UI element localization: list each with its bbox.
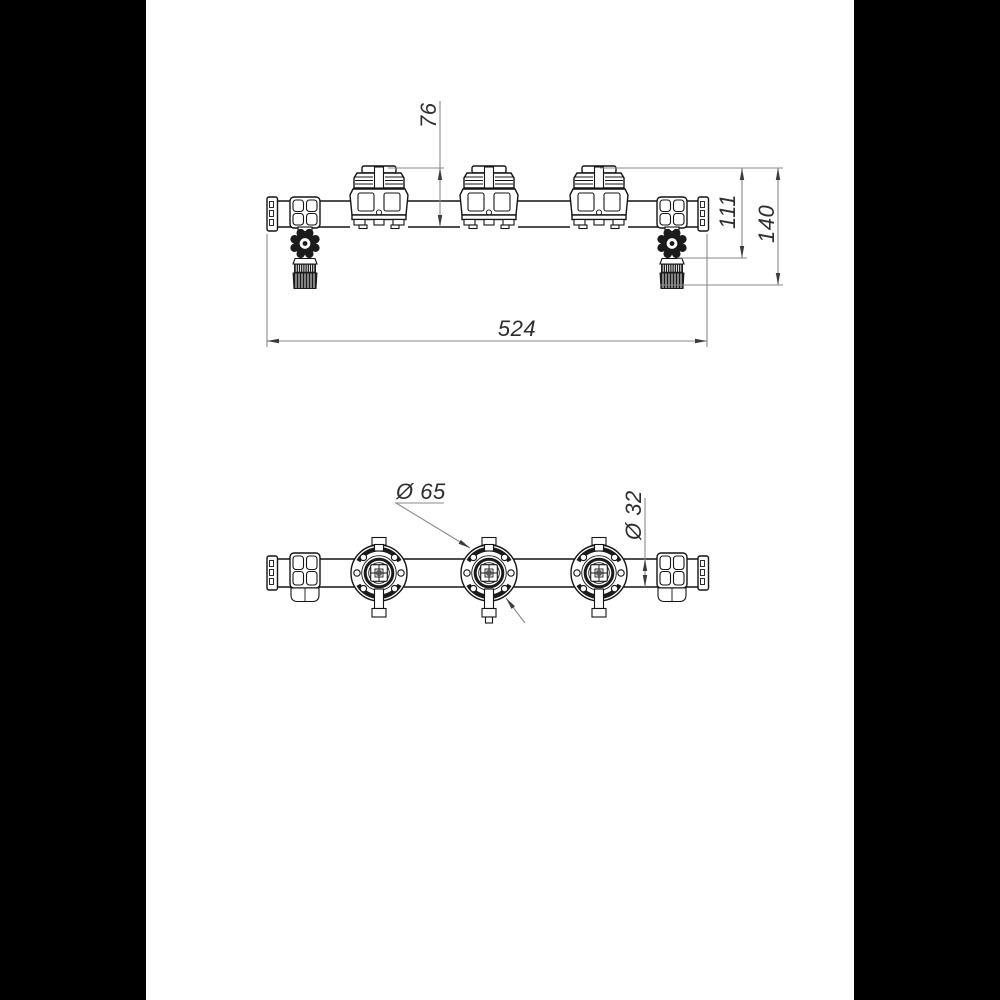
valve-2-front — [460, 166, 518, 229]
left-drain-valve-front — [290, 227, 319, 289]
valve-2-stem-tip — [486, 617, 493, 623]
right-endcap-plan — [698, 556, 709, 590]
left-union-front — [290, 197, 320, 228]
dim-111-label: 111 — [715, 194, 740, 229]
technical-drawing: 76 111 140 524 — [0, 0, 1000, 1000]
dim-140-label: 140 — [754, 205, 779, 243]
dim-dia65-label: Ø 65 — [395, 479, 446, 504]
dim-dia32-label: Ø 32 — [621, 490, 646, 541]
right-union-plan — [657, 553, 687, 602]
dim-76-label: 76 — [416, 102, 441, 128]
right-union-front — [657, 197, 687, 228]
screenshot-canvas: 76 111 140 524 — [0, 0, 1000, 1000]
right-endcap-front — [698, 197, 709, 231]
left-endcap-plan — [267, 556, 278, 590]
left-union-plan — [290, 553, 320, 602]
valve-3-front — [570, 166, 628, 229]
left-endcap-front — [267, 197, 278, 231]
drawing-sheet — [146, 0, 854, 1000]
valve-1-front — [350, 166, 408, 229]
dim-524-label: 524 — [498, 316, 536, 341]
